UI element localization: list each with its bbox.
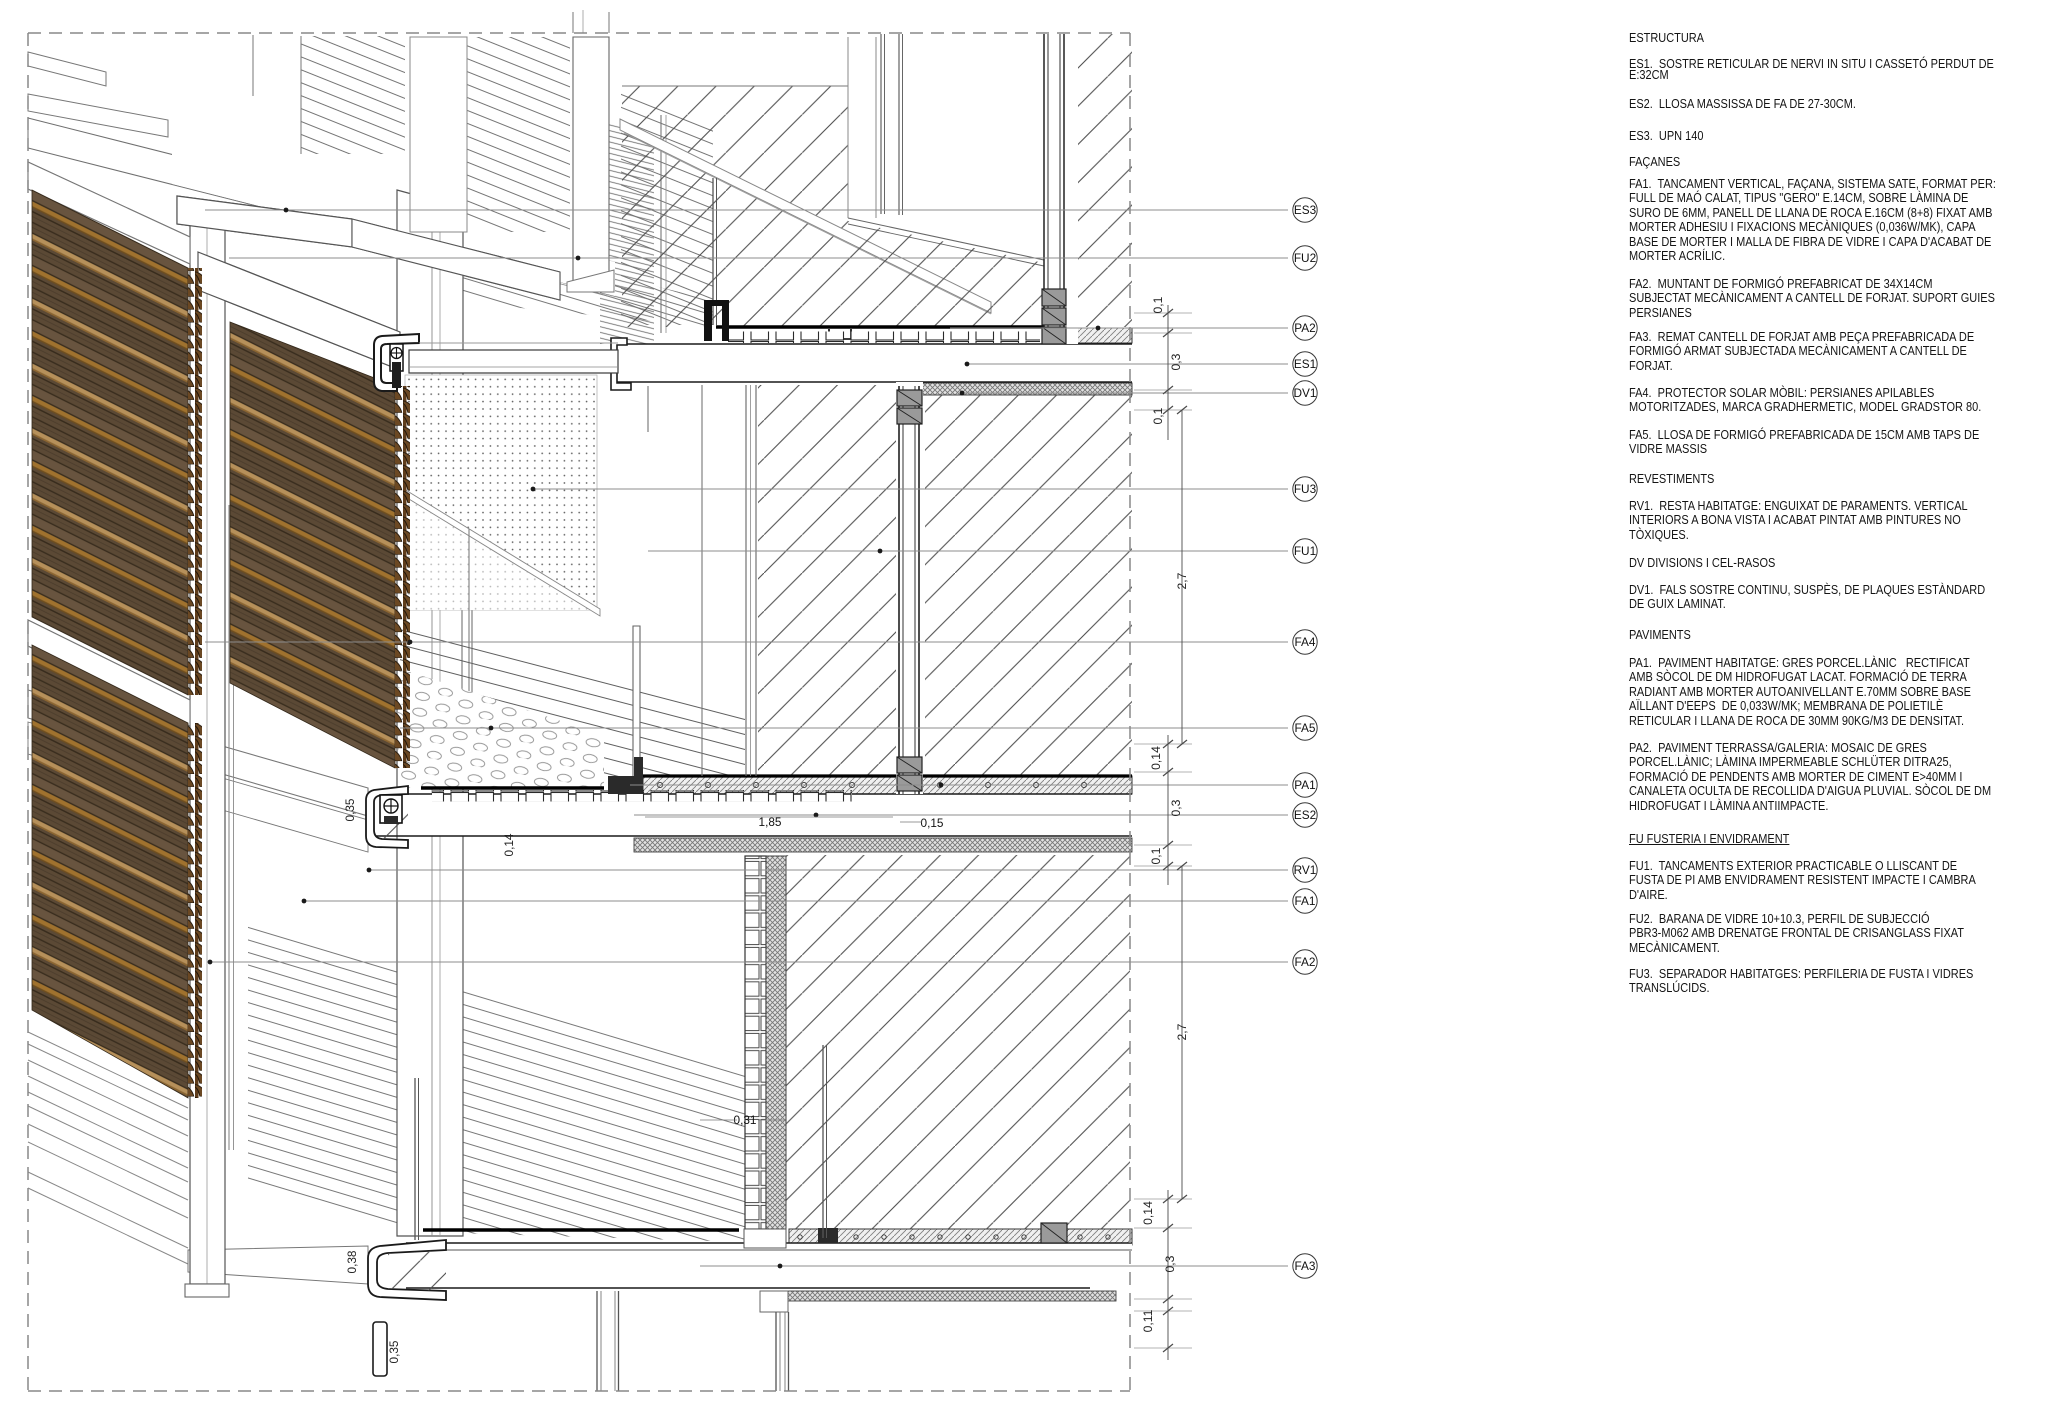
svg-text:0,38: 0,38 bbox=[345, 1250, 359, 1273]
svg-text:0,35: 0,35 bbox=[387, 1340, 401, 1363]
svg-text:0,1: 0,1 bbox=[1151, 296, 1165, 313]
svg-text:DV1: DV1 bbox=[1294, 386, 1317, 400]
svg-text:PA2: PA2 bbox=[1294, 321, 1315, 335]
svg-text:FU2: FU2 bbox=[1294, 251, 1316, 265]
svg-text:0,3: 0,3 bbox=[1169, 799, 1183, 816]
svg-text:ES2: ES2 bbox=[1294, 808, 1316, 822]
svg-text:ES1: ES1 bbox=[1294, 357, 1316, 371]
svg-text:0,35: 0,35 bbox=[343, 798, 357, 821]
svg-text:FA4: FA4 bbox=[1295, 635, 1316, 649]
svg-text:FA3: FA3 bbox=[1295, 1259, 1316, 1273]
svg-text:FA2: FA2 bbox=[1295, 955, 1316, 969]
svg-text:2,7: 2,7 bbox=[1175, 572, 1189, 589]
svg-text:0,1: 0,1 bbox=[1151, 407, 1165, 424]
svg-text:0,11: 0,11 bbox=[1141, 1309, 1155, 1332]
svg-text:PA1: PA1 bbox=[1294, 778, 1315, 792]
svg-text:2,7: 2,7 bbox=[1175, 1023, 1189, 1040]
svg-text:0,3: 0,3 bbox=[1169, 353, 1183, 370]
svg-text:0,14: 0,14 bbox=[1149, 746, 1163, 770]
svg-text:FU3: FU3 bbox=[1294, 482, 1317, 496]
svg-text:FA1: FA1 bbox=[1295, 894, 1316, 908]
svg-text:0,1: 0,1 bbox=[1149, 847, 1163, 864]
svg-text:FA5: FA5 bbox=[1295, 721, 1316, 735]
svg-text:0,3: 0,3 bbox=[1163, 1255, 1177, 1272]
svg-text:0,14: 0,14 bbox=[1141, 1201, 1155, 1225]
svg-text:ES3: ES3 bbox=[1294, 203, 1317, 217]
svg-text:0,14: 0,14 bbox=[502, 833, 516, 856]
svg-text:FU1: FU1 bbox=[1294, 544, 1316, 558]
svg-text:RV1: RV1 bbox=[1294, 863, 1317, 877]
svg-text:0,15: 0,15 bbox=[921, 816, 944, 830]
